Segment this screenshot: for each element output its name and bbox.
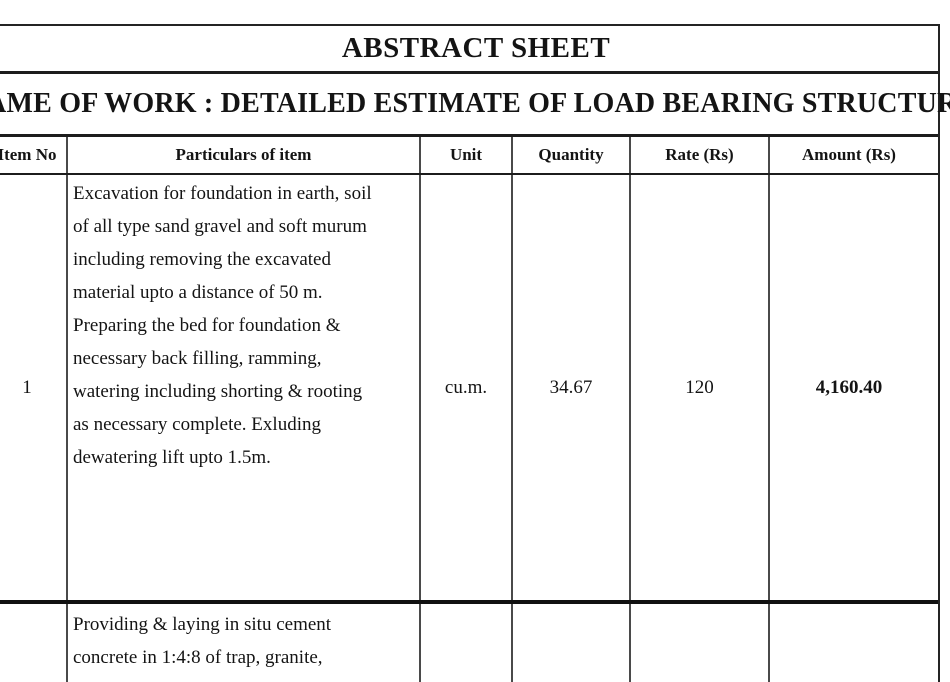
- row1-rate: 120: [631, 175, 770, 600]
- row2-amount: [770, 604, 928, 682]
- row2-quantity: [513, 604, 631, 682]
- column-header-particulars: Particulars of item: [68, 137, 421, 173]
- table-row: 1 Excavation for foundation in earth, so…: [0, 175, 938, 604]
- column-header-quantity: Quantity: [513, 137, 631, 173]
- row1-quantity: 34.67: [513, 175, 631, 600]
- row2-unit: [421, 604, 513, 682]
- column-header-item-no: Item No: [0, 137, 68, 173]
- abstract-sheet-table: ABSTRACT SHEET NAME OF WORK : DETAILED E…: [0, 24, 940, 682]
- column-header-amount: Amount (Rs): [770, 137, 928, 173]
- column-header-rate: Rate (Rs): [631, 137, 770, 173]
- column-header-unit: Unit: [421, 137, 513, 173]
- sheet-title: ABSTRACT SHEET: [0, 26, 938, 74]
- name-of-work-heading: NAME OF WORK : DETAILED ESTIMATE OF LOAD…: [0, 74, 938, 137]
- document-scan-viewport: ABSTRACT SHEET NAME OF WORK : DETAILED E…: [0, 0, 950, 682]
- table-header-row: Item No Particulars of item Unit Quantit…: [0, 137, 938, 175]
- row2-particulars: Providing & laying in situ cement concre…: [68, 604, 421, 682]
- row2-rate: [631, 604, 770, 682]
- table-row: Providing & laying in situ cement concre…: [0, 604, 938, 682]
- row1-unit: cu.m.: [421, 175, 513, 600]
- row1-particulars: Excavation for foundation in earth, soil…: [68, 175, 421, 600]
- row1-amount: 4,160.40: [770, 175, 928, 600]
- row2-item-no: [0, 604, 68, 682]
- row1-item-no: 1: [0, 175, 68, 600]
